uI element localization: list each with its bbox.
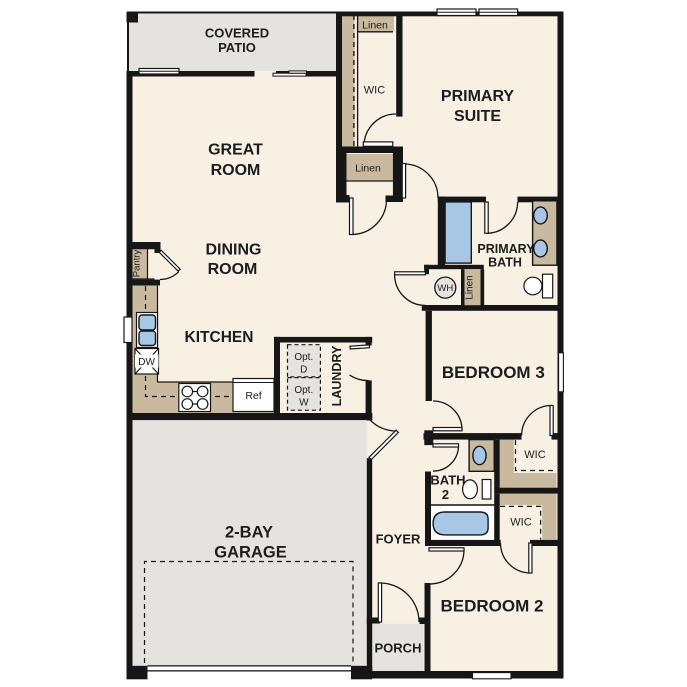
svg-text:FOYER: FOYER — [376, 532, 421, 547]
svg-text:Linen: Linen — [362, 19, 388, 31]
svg-text:BEDROOM 3: BEDROOM 3 — [442, 363, 545, 382]
svg-text:PORCH: PORCH — [375, 641, 422, 656]
svg-text:WIC: WIC — [510, 517, 531, 529]
svg-text:PATIO: PATIO — [218, 40, 256, 55]
svg-text:D: D — [300, 365, 307, 376]
svg-text:WIC: WIC — [364, 85, 385, 97]
svg-text:GREAT: GREAT — [208, 142, 263, 159]
svg-text:KITCHEN: KITCHEN — [185, 329, 254, 346]
svg-text:Linen: Linen — [355, 163, 381, 175]
svg-text:Opt.: Opt. — [294, 385, 313, 396]
svg-text:SUITE: SUITE — [454, 108, 501, 125]
svg-text:ROOM: ROOM — [208, 261, 258, 278]
svg-text:WH: WH — [437, 283, 453, 294]
svg-text:LAUNDRY: LAUNDRY — [330, 345, 344, 406]
svg-text:2: 2 — [442, 487, 449, 502]
svg-text:COVERED: COVERED — [205, 26, 269, 41]
svg-text:WIC: WIC — [524, 449, 545, 461]
svg-text:GARAGE: GARAGE — [214, 544, 286, 562]
svg-text:DW: DW — [138, 357, 155, 368]
svg-text:BATH: BATH — [488, 256, 522, 270]
svg-text:BATH: BATH — [430, 473, 465, 488]
svg-text:Ref: Ref — [245, 390, 261, 402]
svg-text:DINING: DINING — [206, 242, 262, 259]
svg-text:2-BAY: 2-BAY — [225, 524, 273, 542]
svg-text:ROOM: ROOM — [211, 162, 261, 179]
svg-text:Pantry: Pantry — [131, 250, 142, 278]
svg-text:BEDROOM 2: BEDROOM 2 — [441, 597, 544, 616]
svg-text:Opt.: Opt. — [294, 352, 313, 363]
svg-text:PRIMARY: PRIMARY — [477, 242, 535, 256]
svg-text:W: W — [299, 398, 309, 409]
svg-text:PRIMARY: PRIMARY — [441, 88, 515, 105]
svg-text:Linen: Linen — [464, 275, 475, 299]
